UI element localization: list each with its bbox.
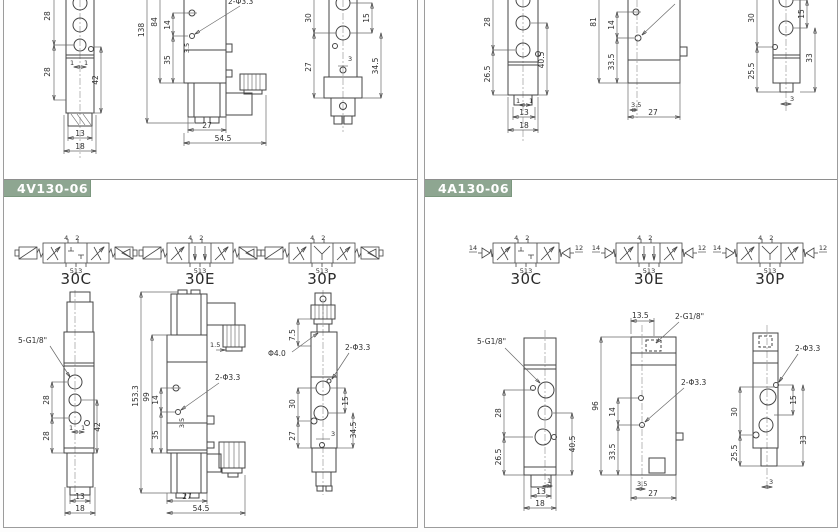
dim-label: 27: [648, 108, 658, 117]
dim-label: 33: [805, 53, 814, 63]
dim-label: 26.5: [483, 65, 492, 82]
top-drawings-4v: 1 1 28 28 42 13 18 2-Φ3.3: [4, 0, 417, 175]
valve-symbol-30c: 4 2 513 30C: [15, 234, 137, 286]
variant-caption: 30P: [755, 270, 785, 286]
dim-label: 42: [91, 75, 100, 85]
section-4a130-06: 1 1 28 26.5 40.5 13 18: [424, 0, 838, 528]
dim-label: 40.5: [568, 435, 577, 452]
port-thread-label: 5-G1/8": [18, 336, 47, 345]
ports-top-label: 4 2: [310, 234, 328, 242]
dim-label: 18: [535, 499, 545, 508]
top-side-view: 2-Φ3.3 138 84 14 35 3.5 27 54.5: [137, 0, 266, 146]
bottom-drawings-4a: 5-G1/8" 28 26.5 40.5 1 13 18: [425, 286, 837, 526]
symbols-4a: 14 12 4 2 513 30C 14 12 4 2: [425, 200, 837, 286]
dim-label: 34.5: [371, 57, 380, 74]
dim-label: 1: [529, 97, 533, 105]
dim-label: 99: [142, 392, 151, 402]
bottom-front-view: 5-G1/8" 28 28 42 1 1 13 18: [18, 290, 102, 516]
bottom-side-view: 1.5 2-Φ3.3 153.3: [131, 290, 245, 516]
dim-label: 26.5: [494, 448, 503, 465]
dim-label: 3: [769, 478, 773, 486]
hole-label: 2-Φ3.3: [681, 378, 707, 387]
section-4v130-06: 1 1 28 28 42 13 18 2-Φ3.3: [3, 0, 418, 528]
ports-top-label: 4 2: [64, 234, 82, 242]
dim-label: 40.5: [537, 51, 546, 68]
hole-label: 2-Φ3.3: [228, 0, 254, 6]
dim-label: 30: [730, 407, 739, 417]
variant-caption: 30P: [307, 270, 337, 286]
dim-label: 54.5: [215, 134, 232, 143]
ports-top-label: 4 2: [637, 234, 655, 242]
dim-label: 3: [790, 95, 794, 103]
bottom-back-view: 2-Φ3.3 30 25.5 15 33 3: [730, 325, 821, 490]
dim-label: 34.5: [349, 421, 358, 438]
hole-label: 2-Φ3.3: [215, 373, 241, 382]
symbols-4v: 4 2 513 30C 4 2 513 30E: [4, 200, 417, 286]
dim-label: 28: [42, 431, 51, 441]
dim-label: 3: [348, 55, 352, 63]
ports-top-label: 4 2: [514, 234, 532, 242]
dim-label: 3.5: [631, 101, 641, 109]
dim-label: 3.5: [178, 418, 186, 428]
datasheet-page: { "left_panel": { "code": "4V130-06", "s…: [0, 0, 840, 532]
dim-label: 15: [797, 9, 806, 19]
dim-label: 1: [84, 59, 88, 67]
dim-label: 28: [483, 17, 492, 27]
dim-label: 1: [70, 59, 74, 67]
dim-label: 14: [608, 407, 617, 417]
top-back-view: 30 27 15 34.5 3: [304, 0, 381, 132]
section-badge: 4V130-06: [4, 180, 91, 197]
dim-label: 30: [304, 13, 313, 23]
dim-label: 13: [75, 129, 85, 138]
dim-label: 1: [547, 477, 551, 485]
dim-label: 15: [362, 13, 371, 23]
dim-label: 3.5: [637, 480, 647, 488]
pilot-port-label: 14: [592, 244, 600, 252]
section-header-row: 4A130-06: [425, 179, 837, 200]
dim-label: 25.5: [730, 444, 739, 461]
valve-symbol-30p: 4 2 513 30P: [261, 234, 383, 286]
top-front-view: 1 1 28 26.5 40.5 13 18: [483, 0, 547, 142]
bottom-drawings-4v: 5-G1/8" 28 28 42 1 1 13 18: [4, 286, 417, 526]
dim-label: 28: [43, 67, 52, 77]
dim-label: 3.5: [183, 43, 191, 53]
dim-label: 84: [150, 17, 159, 27]
hole-label: 2-Φ3.3: [345, 343, 371, 352]
variant-caption: 30E: [185, 270, 215, 286]
dim-label: 27: [648, 489, 658, 498]
pilot-port-label: 14: [713, 244, 721, 252]
dim-label: 18: [519, 121, 529, 130]
dim-label: 13: [75, 492, 85, 501]
dim-label: 153.3: [131, 385, 140, 407]
dim-label: 25.5: [747, 62, 756, 79]
dim-label: 1.5: [210, 341, 220, 349]
dim-label: 27: [182, 492, 192, 501]
port-thread-label: 5-G1/8": [477, 337, 506, 346]
dim-label: 15: [341, 396, 350, 406]
dim-label: 28: [42, 395, 51, 405]
dim-label: 35: [151, 430, 160, 440]
dim-label: 15: [789, 395, 798, 405]
top-back-view: 30 25.5 15 33 3: [747, 0, 815, 112]
pilot-port-label: 12: [819, 244, 827, 252]
dim-label: 7.5: [288, 329, 297, 341]
dim-label: 1: [516, 97, 520, 105]
dim-label: 28: [494, 408, 503, 418]
top-front-view: 1 1 28 28 42 13 18: [43, 0, 101, 158]
dim-label: 14: [607, 20, 616, 30]
dim-label: 1: [69, 424, 73, 432]
dim-label: 81: [589, 17, 598, 27]
dim-label: 27: [288, 431, 297, 441]
valve-symbol-30e: 4 2 513 30E: [139, 234, 261, 286]
dim-label: 27: [202, 121, 212, 130]
dim-label: 33.5: [608, 443, 617, 460]
bottom-front-view: 5-G1/8" 28 26.5 40.5 1 13 18: [477, 330, 577, 511]
dim-label: 14: [163, 20, 172, 30]
orifice-label: Φ4.0: [268, 349, 286, 358]
pilot-port-label: 14: [469, 244, 477, 252]
top-side-view: 81 14 33.5 3.5 27: [589, 0, 687, 120]
dim-label: 138: [137, 23, 146, 38]
bottom-back-view: 7.5 Φ4.0 2-Φ3.3 30 27 15 34.5 3: [268, 290, 371, 495]
variant-caption: 30E: [634, 270, 664, 286]
dim-label: 33: [799, 435, 808, 445]
dim-label: 35: [163, 55, 172, 65]
valve-symbol-30c: 14 12 4 2 513 30C: [469, 234, 583, 286]
section-badge: 4A130-06: [425, 180, 512, 197]
dim-label: 18: [75, 504, 85, 513]
dim-label: 30: [288, 399, 297, 409]
dim-label: 42: [93, 422, 102, 432]
dim-label: 33.5: [607, 53, 616, 70]
dim-label: 1: [81, 424, 85, 432]
dim-label: 13: [519, 108, 529, 117]
valve-symbol-30p: 14 12 4 2 513 30P: [713, 234, 827, 286]
ports-top-label: 4 2: [188, 234, 206, 242]
dim-label: 27: [304, 62, 313, 72]
section-header-row: 4V130-06: [4, 179, 417, 200]
pilot-port-label: 12: [698, 244, 706, 252]
pilot-port-label: 12: [575, 244, 583, 252]
dim-label: 3: [331, 430, 335, 438]
dim-label: 18: [75, 142, 85, 151]
dim-label: 13: [536, 487, 546, 496]
dim-label: 14: [151, 395, 160, 405]
valve-symbol-30e: 14 12 4 2 513 30E: [592, 234, 706, 286]
dim-label: 28: [43, 11, 52, 21]
variant-caption: 30C: [510, 270, 541, 286]
dim-label: 13.5: [632, 311, 649, 320]
variant-caption: 30C: [60, 270, 91, 286]
bottom-side-view: 13.5 2-G1/8" 96 14 33.5 2-Φ3.3 3.5 27: [591, 311, 707, 501]
port-thread-label: 2-G1/8": [675, 312, 704, 321]
dim-label: 54.5: [193, 504, 210, 513]
dim-label: 96: [591, 401, 600, 411]
dim-label: 30: [747, 13, 756, 23]
ports-top-label: 4 2: [758, 234, 776, 242]
hole-label: 2-Φ3.3: [795, 344, 821, 353]
top-drawings-4a: 1 1 28 26.5 40.5 13 18: [425, 0, 837, 175]
